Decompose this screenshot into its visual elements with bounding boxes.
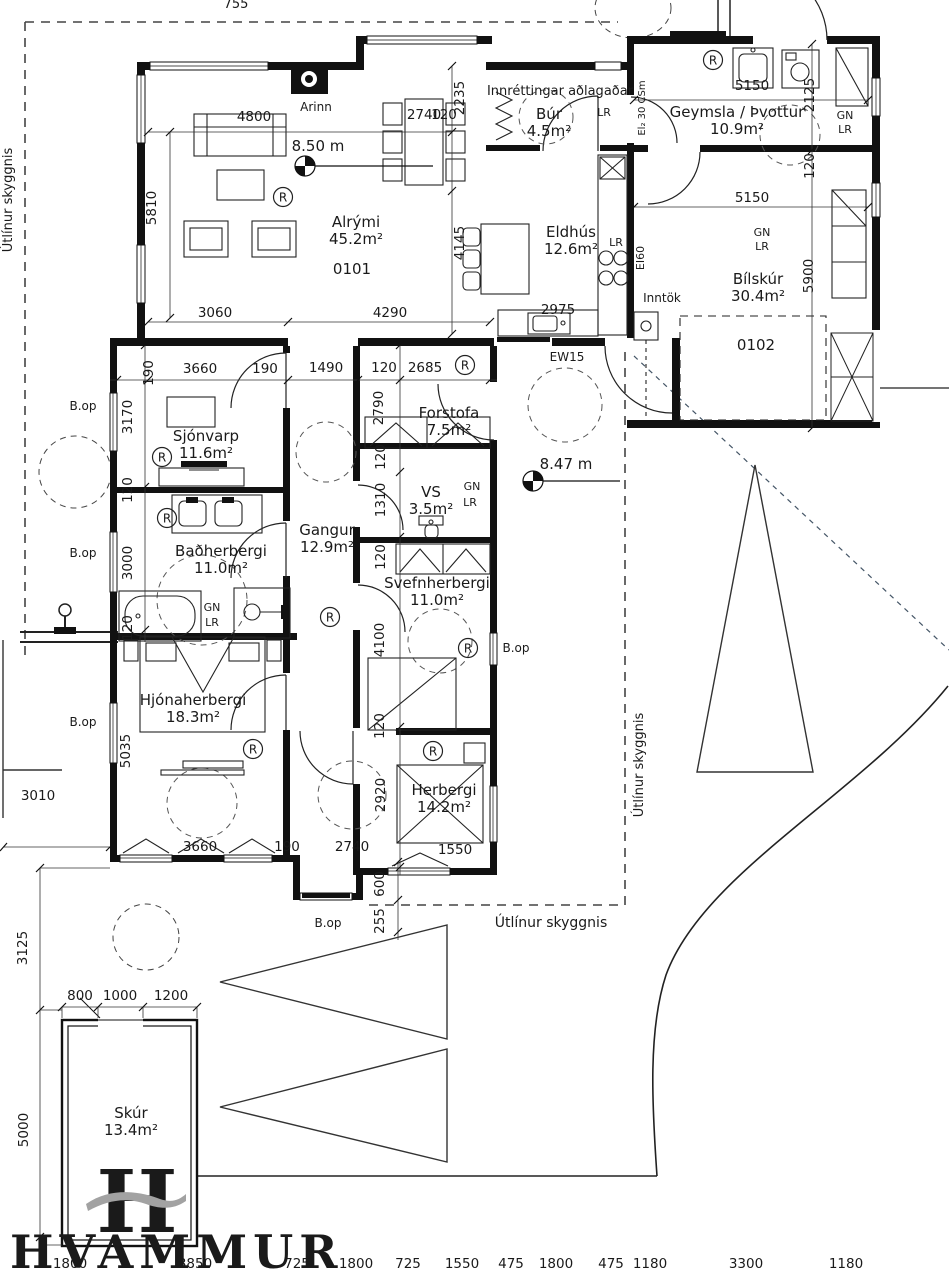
- text-label: Innréttingar aðlagaðar: [487, 84, 634, 99]
- dimension-label: 4800: [237, 109, 271, 125]
- dimension-label: 725: [395, 1256, 421, 1272]
- tree-icon: [220, 925, 447, 1039]
- room-name: Búr: [536, 105, 563, 123]
- r-symbol-letter: R: [158, 451, 166, 465]
- text-label: 0101: [333, 260, 371, 278]
- room-area: 11.0m²: [194, 559, 248, 577]
- dimension-label: 3170: [120, 400, 136, 434]
- text-label: Arinn: [300, 100, 332, 114]
- dimension-label: 1180: [633, 1256, 667, 1272]
- dimension-label: 190: [252, 361, 278, 377]
- dimension-label: 120: [802, 153, 818, 179]
- room-name: Bílskúr: [733, 270, 784, 288]
- room-name: VS: [421, 483, 441, 501]
- dimension-label: 120: [373, 544, 389, 570]
- text-label: 0102: [737, 336, 775, 354]
- dimension-label: 1490: [309, 360, 343, 376]
- text-label: LR: [838, 123, 852, 136]
- dimension-label: 4100: [372, 623, 388, 657]
- room-name: Baðherbergi: [175, 542, 267, 560]
- dimension-label: 2740: [335, 839, 369, 855]
- dimension-label: 5035: [118, 734, 134, 768]
- dimension-label: 1000: [103, 988, 137, 1004]
- room-name: Geymsla / Þvottur: [670, 103, 806, 121]
- r-symbol-letter: R: [279, 191, 287, 205]
- r-symbol-letter: R: [163, 512, 171, 526]
- room-name: Gangur: [299, 521, 355, 539]
- dimension-label: 3010: [21, 788, 55, 804]
- room-area: 30.4m²: [731, 287, 785, 305]
- room-name: Skúr: [114, 1104, 148, 1122]
- room-name: Forstofa: [419, 404, 480, 422]
- room-area: 45.2m²: [329, 230, 383, 248]
- dimension-label: 190: [274, 839, 300, 855]
- dimension-label: 5810: [144, 191, 160, 225]
- dimension-label: 120: [372, 713, 388, 739]
- r-symbol-letter: R: [464, 642, 472, 656]
- logo: H HVAMMUR: [10, 1152, 343, 1279]
- dimension-label: 5150: [735, 190, 769, 206]
- text-label: Útlínur skyggnis: [495, 913, 608, 931]
- dimension-label: 2790: [371, 391, 387, 425]
- room-area: 12.9m²: [300, 538, 354, 556]
- room-area: 4.5m²: [527, 122, 571, 140]
- room-name: Herbergi: [411, 781, 476, 799]
- text-label: EW15: [550, 350, 585, 364]
- dimension-label: 1180: [829, 1256, 863, 1272]
- dimension-label: 2975: [541, 302, 575, 318]
- dimension-label: 1310: [373, 483, 389, 517]
- text-label: Útlínur skyggnis: [0, 148, 16, 253]
- dimension-label: 120: [120, 477, 136, 503]
- room-area: 11.0m²: [410, 591, 464, 609]
- r-symbol-letter: R: [326, 611, 334, 625]
- driveway-curve: [653, 686, 948, 1176]
- shadow-diagonal: [634, 356, 949, 650]
- room-area: 18.3m²: [166, 708, 220, 726]
- dimension-label: 1550: [438, 842, 472, 858]
- room-name: Alrými: [332, 213, 380, 231]
- dimension-label: 2920: [373, 778, 389, 812]
- turning-circles: [157, 90, 820, 838]
- text-label: B.op: [502, 641, 529, 655]
- dimension-label: 190: [141, 360, 157, 386]
- r-symbol-letter: R: [709, 54, 717, 68]
- room-name: Eldhús: [546, 223, 596, 241]
- room-area: 10.9m²: [710, 120, 764, 138]
- text-label: EI60: [634, 246, 647, 270]
- dimension-label: 3060: [198, 305, 232, 321]
- dimension-label: 120: [373, 444, 389, 470]
- room-name: Svefnherbergi: [384, 574, 490, 592]
- dimension-label: 2125: [802, 78, 818, 112]
- dimension-label: 5150: [735, 78, 769, 94]
- tree-icon: [220, 1049, 447, 1162]
- dimension-label: 1800: [539, 1256, 573, 1272]
- dimension-lines: [0, 40, 872, 1245]
- dimension-label: 4145: [452, 226, 468, 260]
- text-label: B.op: [69, 399, 96, 413]
- text-label: GN: [464, 480, 481, 493]
- text-label: 8.47 m: [540, 455, 593, 473]
- logo-wordmark: HVAMMUR: [10, 1225, 343, 1279]
- dimension-label: 5000: [16, 1113, 32, 1147]
- text-label: GN: [204, 601, 221, 614]
- text-label: LR: [609, 236, 623, 249]
- room-area: 12.6m²: [544, 240, 598, 258]
- room-area: 14.2m²: [417, 798, 471, 816]
- text-label: El₂ 30 CSm: [637, 80, 648, 135]
- text-label: LR: [755, 240, 769, 253]
- r-symbol-letter: R: [249, 743, 257, 757]
- dimension-label: 3300: [729, 1256, 763, 1272]
- dimension-label: 255: [372, 908, 388, 934]
- dimension-label: 120: [431, 107, 457, 123]
- dimension-label: 475: [498, 1256, 524, 1272]
- floor-plan-page: Alrými45.2m²Eldhús12.6m²Búr4.5m²Geymsla …: [0, 0, 949, 1280]
- dimension-label: 120: [371, 360, 397, 376]
- dimension-label: 120: [120, 615, 136, 641]
- dimension-label: 800: [67, 988, 93, 1004]
- text-label: LR: [597, 106, 611, 119]
- r-symbol-letter: R: [461, 359, 469, 373]
- room-area: 11.6m²: [179, 444, 233, 462]
- dimension-label: 475: [598, 1256, 624, 1272]
- dimension-label: 3125: [15, 931, 31, 965]
- dimension-label: 4290: [373, 305, 407, 321]
- r-symbol-letter: R: [429, 745, 437, 759]
- dimension-label: 1550: [445, 1256, 479, 1272]
- floor-plan-canvas: Alrými45.2m²Eldhús12.6m²Búr4.5m²Geymsla …: [0, 0, 949, 1280]
- text-label: LR: [463, 496, 477, 509]
- text-label: GN: [754, 226, 771, 239]
- text-label: Útlínur skyggnis: [631, 713, 647, 818]
- dimension-label: 3000: [120, 546, 136, 580]
- text-label: LR: [205, 616, 219, 629]
- dimension-label: 3660: [183, 839, 217, 855]
- text-label: B.op: [69, 715, 96, 729]
- dimension-label: 1800: [339, 1256, 373, 1272]
- room-name: Hjónaherbergi: [140, 691, 247, 709]
- text-label: 8.50 m: [292, 137, 345, 155]
- room-area: 7.5m²: [427, 421, 471, 439]
- dimension-label: 600: [372, 871, 388, 897]
- dimension-label: 2685: [408, 360, 442, 376]
- dimension-label: 1200: [154, 988, 188, 1004]
- text-label: GN: [837, 109, 854, 122]
- dimension-label: 5900: [801, 259, 817, 293]
- text-label: B.op: [314, 916, 341, 930]
- tree-icon: [697, 465, 813, 772]
- text-label: B.op: [69, 546, 96, 560]
- text-label: Inntök: [643, 291, 681, 305]
- dimension-label: 3660: [183, 361, 217, 377]
- room-name: Sjónvarp: [173, 427, 239, 445]
- level-markers: [295, 156, 620, 491]
- room-area: 3.5m²: [409, 500, 453, 518]
- text-label: 755: [224, 0, 249, 12]
- room-area: 13.4m²: [104, 1121, 158, 1139]
